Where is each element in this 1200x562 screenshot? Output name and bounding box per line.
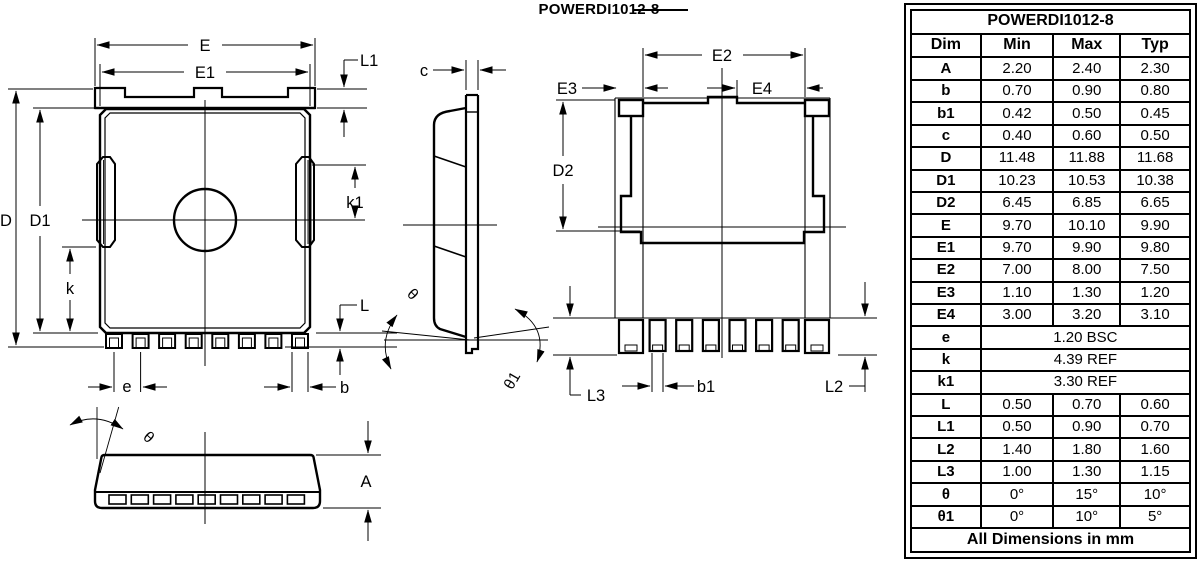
package-drawing-page: POWERDI1012-8 bbox=[0, 0, 1200, 562]
value-cell: 1.20 bbox=[1120, 282, 1190, 304]
dim-label-cell: b bbox=[911, 80, 981, 102]
bottom-view-drawing: E2 E3 E4 D2 b1 L bbox=[552, 47, 877, 405]
dim-label-cell: L2 bbox=[911, 438, 981, 460]
value-cell: 0.50 bbox=[1053, 102, 1120, 124]
table-row: D110.2310.5310.38 bbox=[911, 170, 1190, 192]
table-row: k13.30 REF bbox=[911, 371, 1190, 393]
value-cell: 0.90 bbox=[1053, 416, 1120, 438]
value-cell: 1.30 bbox=[1053, 282, 1120, 304]
table-row: E27.008.007.50 bbox=[911, 259, 1190, 281]
dim-label-cell: L1 bbox=[911, 416, 981, 438]
value-cell: 3.20 bbox=[1053, 304, 1120, 326]
dim-label-b: b bbox=[340, 379, 349, 397]
value-cell: 0° bbox=[981, 483, 1054, 505]
table-row: b10.420.500.45 bbox=[911, 102, 1190, 124]
value-cell: 1.00 bbox=[981, 461, 1054, 483]
dim-label-E1: E1 bbox=[195, 64, 215, 82]
col-header-max: Max bbox=[1053, 34, 1120, 58]
value-cell: 0° bbox=[981, 506, 1054, 528]
dim-label-cell: D1 bbox=[911, 170, 981, 192]
dim-label-L1: L1 bbox=[360, 52, 378, 70]
value-cell: 1.60 bbox=[1120, 438, 1190, 460]
value-cell: 9.90 bbox=[1053, 237, 1120, 259]
dim-label-E3: E3 bbox=[557, 80, 577, 98]
value-cell: 5° bbox=[1120, 506, 1190, 528]
dim-label-cell: b1 bbox=[911, 102, 981, 124]
dim-label-L3: L3 bbox=[587, 387, 605, 405]
value-cell: 0.60 bbox=[1120, 394, 1190, 416]
dim-label-L2: L2 bbox=[825, 378, 843, 396]
dim-label-E4: E4 bbox=[752, 80, 772, 98]
bottom-view-pins bbox=[619, 320, 829, 353]
table-row: e1.20 BSC bbox=[911, 326, 1190, 348]
dim-label-D1: D1 bbox=[29, 212, 50, 230]
value-cell: 11.88 bbox=[1053, 147, 1120, 169]
value-cell: 3.00 bbox=[981, 304, 1054, 326]
value-cell: 9.70 bbox=[981, 214, 1054, 236]
value-cell: 1.15 bbox=[1120, 461, 1190, 483]
value-cell: 11.68 bbox=[1120, 147, 1190, 169]
dim-label-cell: L bbox=[911, 394, 981, 416]
value-cell: 0.50 bbox=[981, 416, 1054, 438]
dim-label-cell: θ bbox=[911, 483, 981, 505]
value-cell: 1.10 bbox=[981, 282, 1054, 304]
dim-label-cell: c bbox=[911, 125, 981, 147]
span-value-cell: 4.39 REF bbox=[981, 349, 1190, 371]
value-cell: 2.30 bbox=[1120, 57, 1190, 79]
dim-label-c: c bbox=[420, 62, 428, 80]
dim-label-e: e bbox=[122, 378, 131, 396]
dim-label-b1: b1 bbox=[697, 378, 715, 396]
dim-label-cell: E2 bbox=[911, 259, 981, 281]
value-cell: 8.00 bbox=[1053, 259, 1120, 281]
table-footer-row: All Dimensions in mm bbox=[911, 528, 1190, 552]
table-row: L21.401.801.60 bbox=[911, 438, 1190, 460]
value-cell: 15° bbox=[1053, 483, 1120, 505]
table-row: E19.709.909.80 bbox=[911, 237, 1190, 259]
col-header-min: Min bbox=[981, 34, 1054, 58]
drawing-sheet: E E1 L1 D D1 bbox=[0, 0, 905, 562]
dim-label-cell: θ1 bbox=[911, 506, 981, 528]
dim-label-cell: k1 bbox=[911, 371, 981, 393]
table-row: c0.400.600.50 bbox=[911, 125, 1190, 147]
dim-label-cell: D2 bbox=[911, 192, 981, 214]
value-cell: 0.50 bbox=[1120, 125, 1190, 147]
value-cell: 9.70 bbox=[981, 237, 1054, 259]
table-title: POWERDI1012-8 bbox=[911, 10, 1190, 34]
value-cell: 11.48 bbox=[981, 147, 1054, 169]
value-cell: 6.85 bbox=[1053, 192, 1120, 214]
back-view-pin-tips bbox=[110, 338, 305, 348]
value-cell: 2.40 bbox=[1053, 57, 1120, 79]
dim-label-cell: E4 bbox=[911, 304, 981, 326]
dim-label-D: D bbox=[0, 212, 12, 230]
dimension-table: POWERDI1012-8 Dim Min Max Typ A2.202.402… bbox=[910, 9, 1191, 553]
table-row: θ0°15°10° bbox=[911, 483, 1190, 505]
dimension-table-frame: POWERDI1012-8 Dim Min Max Typ A2.202.402… bbox=[904, 3, 1197, 559]
table-row: E9.7010.109.90 bbox=[911, 214, 1190, 236]
value-cell: 6.45 bbox=[981, 192, 1054, 214]
col-header-dim: Dim bbox=[911, 34, 981, 58]
table-header-row: Dim Min Max Typ bbox=[911, 34, 1190, 58]
dim-label-E: E bbox=[199, 37, 210, 55]
value-cell: 10.38 bbox=[1120, 170, 1190, 192]
dim-label-cell: k bbox=[911, 349, 981, 371]
dim-label-cell: D bbox=[911, 147, 981, 169]
table-row: E31.101.301.20 bbox=[911, 282, 1190, 304]
dim-label-cell: e bbox=[911, 326, 981, 348]
value-cell: 9.80 bbox=[1120, 237, 1190, 259]
dim-label-cell: E bbox=[911, 214, 981, 236]
value-cell: 10° bbox=[1053, 506, 1120, 528]
span-value-cell: 1.20 BSC bbox=[981, 326, 1190, 348]
value-cell: 0.70 bbox=[1120, 416, 1190, 438]
value-cell: 9.90 bbox=[1120, 214, 1190, 236]
value-cell: 7.00 bbox=[981, 259, 1054, 281]
value-cell: 10.10 bbox=[1053, 214, 1120, 236]
span-value-cell: 3.30 REF bbox=[981, 371, 1190, 393]
table-row: D26.456.856.65 bbox=[911, 192, 1190, 214]
value-cell: 0.80 bbox=[1120, 80, 1190, 102]
table-footer: All Dimensions in mm bbox=[911, 528, 1190, 552]
dim-label-cell: E3 bbox=[911, 282, 981, 304]
table-row: L31.001.301.15 bbox=[911, 461, 1190, 483]
value-cell: 0.70 bbox=[981, 80, 1054, 102]
value-cell: 10° bbox=[1120, 483, 1190, 505]
table-row: L0.500.700.60 bbox=[911, 394, 1190, 416]
table-row: A2.202.402.30 bbox=[911, 57, 1190, 79]
table-row: E43.003.203.10 bbox=[911, 304, 1190, 326]
table-row: b0.700.900.80 bbox=[911, 80, 1190, 102]
value-cell: 10.53 bbox=[1053, 170, 1120, 192]
table-title-row: POWERDI1012-8 bbox=[911, 10, 1190, 34]
profile-view-pins bbox=[109, 495, 304, 504]
value-cell: 0.45 bbox=[1120, 102, 1190, 124]
value-cell: 0.70 bbox=[1053, 394, 1120, 416]
table-row: k4.39 REF bbox=[911, 349, 1190, 371]
dim-label-cell: A bbox=[911, 57, 981, 79]
value-cell: 0.90 bbox=[1053, 80, 1120, 102]
dim-label-cell: E1 bbox=[911, 237, 981, 259]
dim-label-D2: D2 bbox=[552, 162, 573, 180]
table-row: L10.500.900.70 bbox=[911, 416, 1190, 438]
value-cell: 0.40 bbox=[981, 125, 1054, 147]
dim-label-theta1: θ1 bbox=[501, 369, 524, 392]
profile-view-drawing: θ A bbox=[70, 407, 381, 541]
value-cell: 3.10 bbox=[1120, 304, 1190, 326]
dim-label-E2: E2 bbox=[712, 47, 732, 65]
dim-label-k1: k1 bbox=[346, 194, 363, 212]
dim-label-theta-side: θ bbox=[403, 286, 421, 304]
dim-label-L: L bbox=[360, 297, 369, 315]
dim-label-cell: L3 bbox=[911, 461, 981, 483]
table-row: θ10°10°5° bbox=[911, 506, 1190, 528]
value-cell: 6.65 bbox=[1120, 192, 1190, 214]
col-header-typ: Typ bbox=[1120, 34, 1190, 58]
value-cell: 1.80 bbox=[1053, 438, 1120, 460]
back-view-drawing: E E1 L1 D D1 bbox=[0, 37, 397, 397]
value-cell: 0.60 bbox=[1053, 125, 1120, 147]
value-cell: 0.50 bbox=[981, 394, 1054, 416]
dim-label-theta-profile: θ bbox=[139, 428, 157, 446]
dim-label-k: k bbox=[66, 280, 75, 298]
dim-label-A: A bbox=[360, 473, 371, 491]
value-cell: 7.50 bbox=[1120, 259, 1190, 281]
value-cell: 2.20 bbox=[981, 57, 1054, 79]
value-cell: 1.30 bbox=[1053, 461, 1120, 483]
value-cell: 1.40 bbox=[981, 438, 1054, 460]
side-view-drawing: c θ θ1 bbox=[382, 60, 549, 392]
table-row: D11.4811.8811.68 bbox=[911, 147, 1190, 169]
value-cell: 0.42 bbox=[981, 102, 1054, 124]
value-cell: 10.23 bbox=[981, 170, 1054, 192]
